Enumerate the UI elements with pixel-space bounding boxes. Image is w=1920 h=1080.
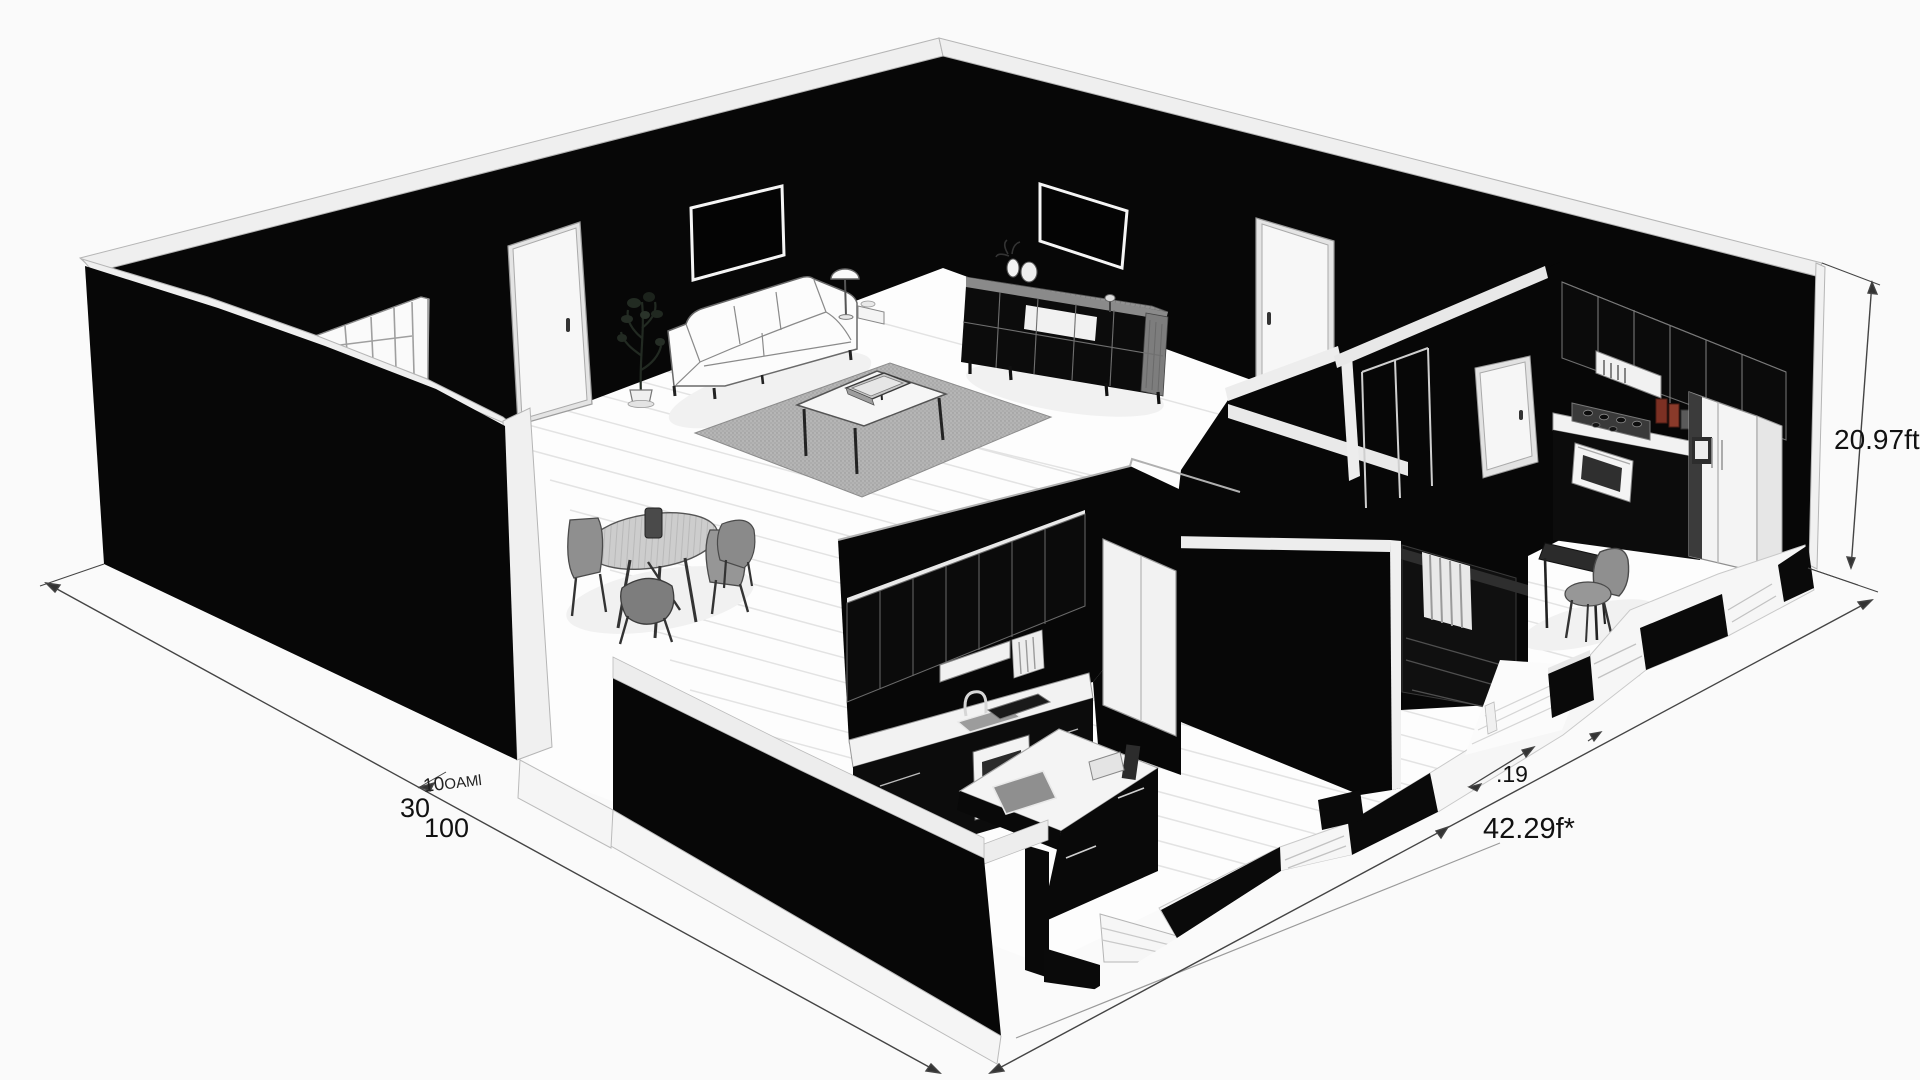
svg-text:.19: .19 bbox=[1496, 761, 1528, 787]
svg-text:42.29f*: 42.29f* bbox=[1483, 813, 1575, 845]
svg-text:20.97ft: 20.97ft bbox=[1834, 424, 1920, 455]
svg-text:100: 100 bbox=[424, 813, 469, 843]
